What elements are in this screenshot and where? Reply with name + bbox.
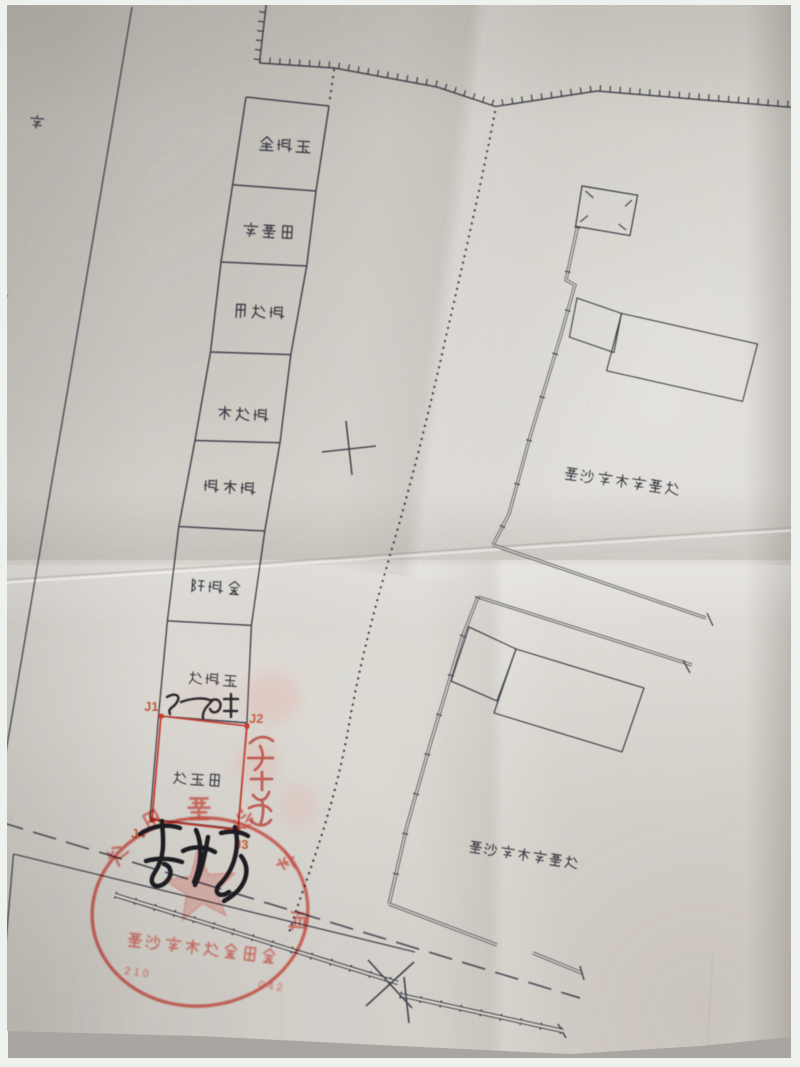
- svg-text:J1: J1: [144, 699, 158, 714]
